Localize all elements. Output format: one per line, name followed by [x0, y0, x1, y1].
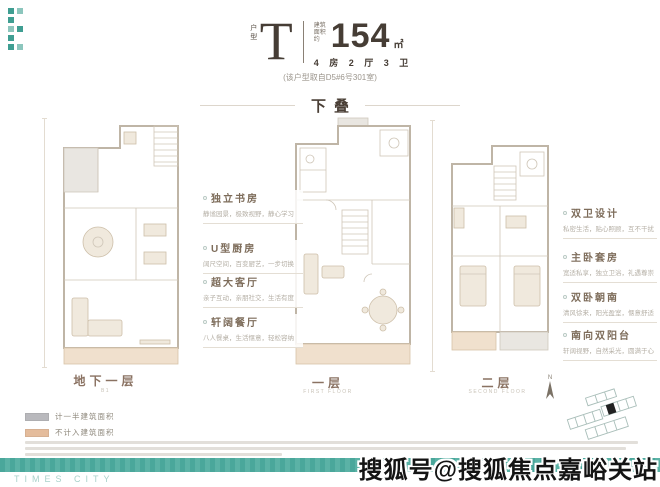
feature-title: 超大客厅 — [211, 274, 259, 289]
feature-desc: 轩阔视野，自然采光，圆满于心 — [563, 345, 657, 361]
feature-livingroom: 超大客厅 亲子互动，亲朋社交，生活有度 — [203, 274, 303, 308]
floor-sublabel-second: SECOND FLOOR — [455, 389, 540, 395]
floor-sublabel-basement: B1 — [58, 388, 153, 394]
bullet-icon — [563, 295, 567, 299]
footer-brand: TIMES CITY — [14, 474, 115, 484]
compass-icon: N — [542, 375, 558, 406]
source-note: (该户型取自D5#6号301室) — [0, 72, 660, 83]
legend-label: 计一半建筑面积 — [55, 411, 115, 422]
section-title: 下叠 — [303, 95, 357, 116]
legend-item-half-area: 计一半建筑面积 — [25, 411, 115, 422]
legend-item-excluded-area: 不计入建筑面积 — [25, 427, 115, 438]
feature-title: 主卧套房 — [571, 249, 619, 264]
feature-south-balconies: 南向双阳台 轩阔视野，自然采光，圆满于心 — [563, 327, 657, 361]
legend-swatch-gray — [25, 413, 49, 421]
legend: 计一半建筑面积 不计入建筑面积 — [25, 411, 115, 443]
floorplan-basement — [50, 112, 192, 370]
dimension-line — [432, 120, 433, 372]
floorplan-poster: 户型 T 建筑面积约 154 ㎡ 4 房 2 厅 3 卫 (该户型取自D5#6号… — [0, 0, 660, 487]
bullet-icon — [563, 255, 567, 259]
feature-double-bath: 双卫设计 私密生活，贴心照顾，互不干扰 — [563, 205, 657, 239]
feature-title: 轩阔餐厅 — [211, 314, 259, 329]
dimension-line — [44, 118, 45, 368]
feature-diningroom: 轩阔餐厅 八人餐桌，生活惬意，轻松容纳 — [203, 314, 303, 348]
feature-study: 独立书房 静谧园景，极致视野，静心学习 — [203, 190, 303, 224]
bullet-icon — [203, 196, 207, 200]
floor-label-basement: 地下一层 — [58, 372, 153, 389]
feature-south-bedrooms: 双卧朝南 清风徐来，阳光盈室，惬意舒适 — [563, 289, 657, 323]
feature-desc: 八人餐桌，生活惬意，轻松容纳 — [203, 332, 303, 348]
site-plan-inset — [562, 386, 648, 446]
feature-title: 独立书房 — [211, 190, 259, 205]
fineprint-line — [25, 441, 638, 444]
legend-swatch-tan — [25, 429, 49, 437]
bullet-icon — [563, 333, 567, 337]
bullet-icon — [203, 246, 207, 250]
area-value: 154 — [331, 20, 391, 52]
feature-desc: 宽适私享，独立卫浴，礼遇尊崇 — [563, 267, 657, 283]
fineprint-line — [25, 453, 282, 456]
feature-desc: 亲子互动，亲朋社交，生活有度 — [203, 292, 303, 308]
type-letter: T — [260, 16, 293, 66]
room-layout: 4 房 2 厅 3 卫 — [314, 56, 413, 69]
feature-title: 双卧朝南 — [571, 289, 619, 304]
feature-title: 南向双阳台 — [571, 327, 631, 342]
feature-desc: 静谧园景，极致视野，静心学习 — [203, 208, 303, 224]
watermark: 搜狐号@搜狐焦点嘉峪关站 — [359, 450, 658, 485]
feature-desc: 清风徐来，阳光盈室，惬意舒适 — [563, 307, 657, 323]
divider-line — [365, 105, 460, 106]
header-divider — [303, 21, 304, 63]
feature-title: U型厨房 — [211, 240, 256, 255]
bullet-icon — [203, 320, 207, 324]
feature-desc: 阔尺空间，百变厨艺，一步切换 — [203, 258, 303, 274]
floorplan-second-floor — [440, 136, 560, 362]
area-unit: ㎡ — [393, 36, 403, 51]
feature-title: 双卫设计 — [571, 205, 619, 220]
feature-desc: 私密生活，贴心照顾，互不干扰 — [563, 223, 657, 239]
type-label: 户型 — [248, 24, 258, 42]
bullet-icon — [203, 280, 207, 284]
legend-label: 不计入建筑面积 — [55, 427, 115, 438]
area-prefix: 建筑面积约 — [314, 23, 328, 44]
feature-kitchen: U型厨房 阔尺空间，百变厨艺，一步切换 — [203, 240, 303, 274]
header: 户型 T 建筑面积约 154 ㎡ 4 房 2 厅 3 卫 — [0, 16, 660, 69]
feature-master-suite: 主卧套房 宽适私享，独立卫浴，礼遇尊崇 — [563, 249, 657, 283]
bullet-icon — [563, 211, 567, 215]
divider-line — [200, 105, 295, 106]
floor-sublabel-first: FIRST FLOOR — [283, 389, 373, 395]
